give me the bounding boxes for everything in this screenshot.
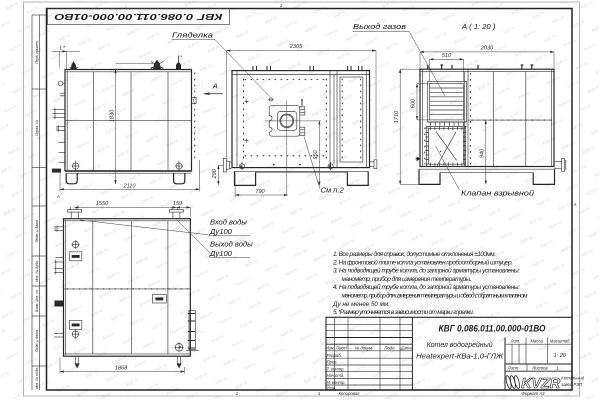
svg-text:завод РЭП: завод РЭП bbox=[560, 382, 583, 387]
svg-text:Разраб.: Разраб. bbox=[327, 353, 342, 358]
svg-text:1830: 1830 bbox=[110, 109, 116, 122]
svg-text:Перв. примен.: Перв. примен. bbox=[35, 40, 39, 64]
svg-text:950: 950 bbox=[313, 149, 319, 159]
svg-text:Ду100: Ду100 bbox=[209, 249, 233, 258]
svg-text:Выход воды: Выход воды bbox=[210, 239, 253, 248]
svg-text:Изм.: Изм. bbox=[326, 345, 335, 350]
svg-text:790: 790 bbox=[255, 189, 265, 195]
svg-text:Ду100: Ду100 bbox=[209, 227, 233, 236]
svg-text:Утв.: Утв. bbox=[327, 385, 337, 390]
svg-text:1: 1 bbox=[318, 391, 320, 396]
svg-text:Инв. № подл.: Инв. № подл. bbox=[35, 367, 39, 389]
svg-text:Взам. инв. №: Взам. инв. № bbox=[35, 290, 39, 312]
svg-text:№ докум.: № докум. bbox=[355, 345, 373, 350]
svg-text:Масса: Масса bbox=[531, 339, 544, 344]
svg-text:Нач.отд.: Нач.отд. bbox=[327, 373, 345, 378]
svg-text:600: 600 bbox=[411, 98, 417, 108]
svg-text:2305: 2305 bbox=[289, 44, 303, 50]
svg-text:2030: 2030 bbox=[480, 45, 494, 51]
svg-text:Т. контр.: Т. контр. bbox=[327, 366, 345, 371]
svg-text:L*: L* bbox=[60, 45, 66, 51]
svg-text:Дата: Дата bbox=[400, 345, 413, 350]
svg-text:940: 940 bbox=[480, 148, 486, 158]
svg-text:1: 1 bbox=[556, 366, 558, 371]
svg-text:манометр, прибор для измерения: манометр, прибор для измерения температу… bbox=[342, 292, 529, 300]
svg-text:Гляделка: Гляделка bbox=[172, 31, 213, 40]
svg-text:Heatexpert-КВа-1,0-ГЛЖ: Heatexpert-КВа-1,0-ГЛЖ bbox=[416, 352, 504, 361]
svg-text:Лит.: Лит. bbox=[510, 339, 521, 344]
svg-text:Ду не менее 50 мм.: Ду не менее 50 мм. bbox=[332, 301, 390, 308]
svg-text:3. На подводящей трубе котла,: 3. На подводящей трубе котла, до запорно… bbox=[333, 267, 520, 275]
svg-text:Выход газов: Выход газов bbox=[353, 22, 406, 31]
svg-text:Котельный: Котельный bbox=[561, 376, 584, 381]
svg-text:КВГ 0.086.011.00.000-01ВО: КВГ 0.086.011.00.000-01ВО bbox=[54, 12, 222, 22]
svg-text:Подп. и дата: Подп. и дата bbox=[35, 220, 39, 243]
svg-text:1868: 1868 bbox=[115, 366, 128, 372]
svg-text:Н. контр.: Н. контр. bbox=[327, 380, 346, 385]
svg-text:5. *Размер уточняется в зависи: 5. *Размер уточняется в зависимости от м… bbox=[333, 309, 474, 316]
svg-text:А: А bbox=[212, 81, 218, 90]
svg-text:См.п.2: См.п.2 bbox=[321, 186, 345, 195]
svg-text:А: А bbox=[573, 202, 577, 207]
svg-text:4. На подводящей трубе котла,: 4. На подводящей трубе котла, до запорно… bbox=[333, 283, 520, 291]
svg-text:Инв. № дубл.: Инв. № дубл. bbox=[35, 260, 39, 282]
svg-text:Листов: Листов bbox=[531, 366, 548, 371]
svg-text:Клапан взрывной: Клапан взрывной bbox=[461, 188, 535, 197]
svg-text:А: А bbox=[56, 194, 60, 199]
svg-text:2110: 2110 bbox=[122, 184, 136, 190]
svg-text:1710: 1710 bbox=[394, 110, 400, 123]
svg-text:Лист: Лист bbox=[335, 345, 347, 350]
svg-text:2. На фронтовой плите котла ус: 2. На фронтовой плите котла установлен п… bbox=[332, 258, 513, 266]
svg-text:Справ. №: Справ. № bbox=[35, 120, 39, 136]
svg-text:Котел водогрейный: Котел водогрейный bbox=[427, 340, 493, 349]
svg-text:159: 159 bbox=[173, 201, 182, 207]
svg-text:290: 290 bbox=[212, 168, 218, 179]
svg-text:Масштаб: Масштаб bbox=[550, 339, 570, 344]
svg-text:Подп.: Подп. bbox=[384, 345, 395, 350]
svg-text:КВГ 0.086.011.00.000-01ВО: КВГ 0.086.011.00.000-01ВО bbox=[439, 324, 546, 335]
svg-text:Пров.: Пров. bbox=[327, 360, 338, 365]
svg-text:Вход воды: Вход воды bbox=[210, 217, 247, 226]
svg-text:Подп. и дата: Подп. и дата bbox=[35, 330, 39, 353]
svg-text:Лист: Лист bbox=[507, 366, 519, 371]
svg-text:1. Все размеры для справок, до: 1. Все размеры для справок, допустимые о… bbox=[333, 250, 496, 258]
svg-text:А ( 1: 20 ): А ( 1: 20 ) bbox=[461, 22, 496, 31]
svg-text:Копировал: Копировал bbox=[339, 391, 360, 396]
svg-text:KVZR: KVZR bbox=[521, 376, 561, 392]
svg-text:1: 20: 1: 20 bbox=[553, 353, 566, 359]
svg-text:1550: 1550 bbox=[96, 201, 109, 207]
svg-text:манометр, прибор для измерения: манометр, прибор для измерения температу… bbox=[342, 275, 472, 283]
svg-text:Формат А3: Формат А3 bbox=[522, 391, 546, 396]
svg-text:510: 510 bbox=[442, 53, 452, 59]
